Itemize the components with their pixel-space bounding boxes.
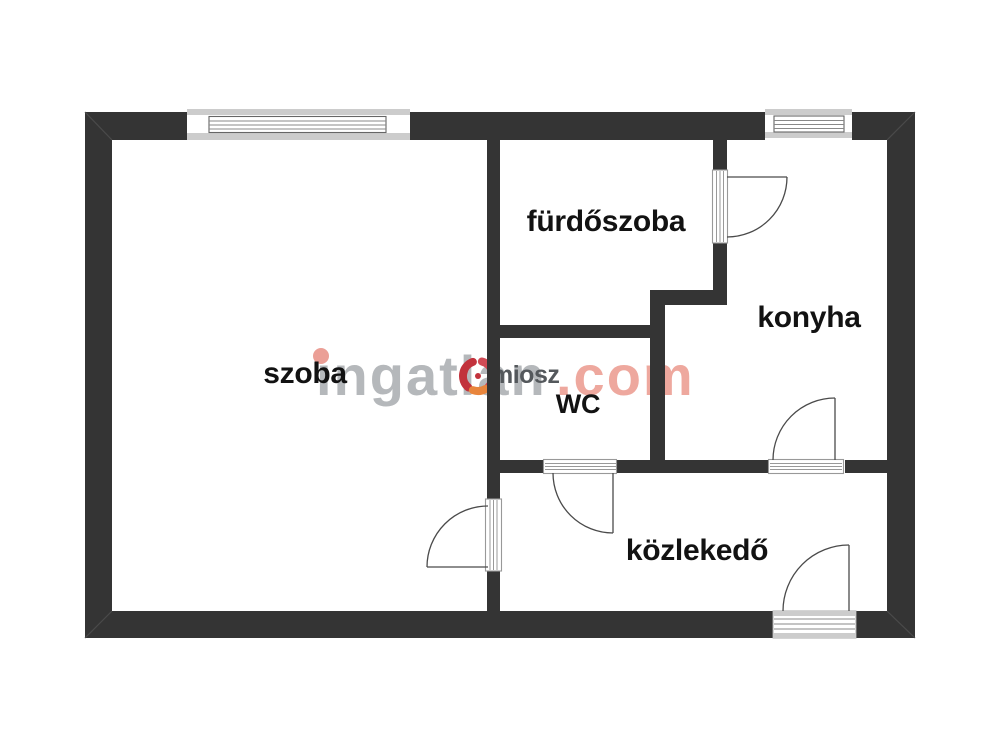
watermark-association: miosz <box>491 361 559 389</box>
wall-kozlekedo-top-right <box>845 460 887 473</box>
wall-outer-left <box>85 112 112 638</box>
wall-outer-bottom-right <box>856 611 915 638</box>
wall-furdoszoba-konyha-upper <box>713 140 727 170</box>
wall-kozlekedo-top-middle <box>617 460 768 473</box>
room-label-szoba: szoba <box>263 357 347 390</box>
wall-szoba-right-upper <box>487 140 500 499</box>
room-label-konyha: konyha <box>757 301 861 334</box>
door-jamb-furdoszoba <box>713 170 728 243</box>
wall-kozlekedo-top-left <box>487 460 543 473</box>
room-label-furdoszoba: fürdőszoba <box>527 205 686 238</box>
door-jamb-wc <box>544 460 617 474</box>
window-szoba <box>187 109 410 140</box>
room-label-kozlekedo: közlekedő <box>626 534 768 567</box>
entrance-door-threshold <box>773 611 856 638</box>
floorplan-canvas: ingatlan .com miosz <box>0 0 1000 750</box>
wall-outer-right <box>887 112 915 638</box>
wall-outer-bottom-left <box>85 611 775 638</box>
door-jamb-konyha-kozlekedo <box>769 460 844 474</box>
watermark: ingatlan .com miosz <box>313 344 695 407</box>
wall-szoba-right-lower <box>487 571 500 611</box>
wall-wc-top <box>487 325 652 338</box>
wall-wc-right <box>650 290 665 473</box>
wall-furdoszoba-konyha-lower <box>713 243 727 305</box>
floorplan-svg: ingatlan .com miosz <box>0 0 1000 750</box>
wall-outer-top-middle <box>410 112 765 140</box>
room-label-wc: WC <box>556 389 600 419</box>
window-konyha <box>765 109 852 138</box>
door-jamb-szoba-kozlekedo <box>486 499 502 571</box>
